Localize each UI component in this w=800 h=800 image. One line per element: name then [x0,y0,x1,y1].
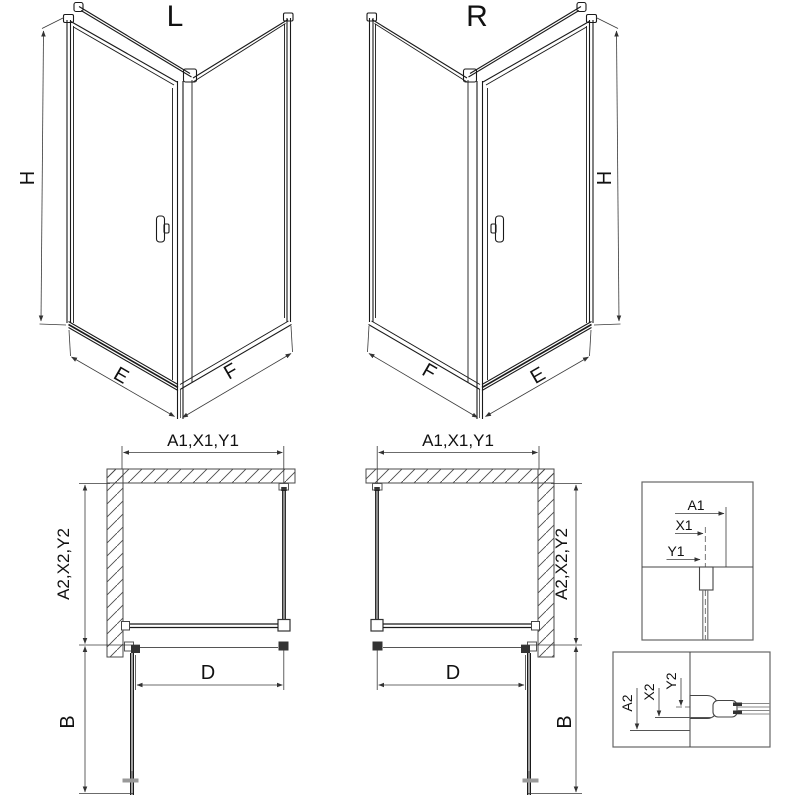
dim-label-front-width-left: E [110,363,133,389]
diagram-canvas: L H E F R H E F A1,X1,Y1 A2,X2,Y2 D B A1… [0,0,800,800]
detail-dim-x1: X1 [675,517,692,533]
dim-label-height-left: H [17,171,39,185]
dim-label-height-right: H [594,171,616,185]
dim-label-side-left-plan: A2,X2,Y2 [54,528,73,600]
dim-label-door-swing-left-plan: B [57,715,79,728]
orientation-label-right: R [466,0,488,33]
dim-label-side-right-plan: A2,X2,Y2 [552,528,571,600]
detail-dim-y2: Y2 [663,672,679,689]
dim-label-door-swing-right-plan: B [554,715,576,728]
plan-view-left: A1,X1,Y1 A2,X2,Y2 D B [54,431,295,795]
dim-label-door-opening-right-plan: D [446,662,460,684]
dim-label-side-width-left: F [220,359,242,384]
wall-top-right-plan [366,469,554,483]
dim-label-top-left-plan: A1,X1,Y1 [167,431,239,450]
detail-box-wall-profile: A1 X1 Y1 [642,482,753,640]
detail-box-bottom-profile: A2 X2 Y2 [613,652,770,747]
plan-view-right: A1,X1,Y1 A2,X2,Y2 D B [366,431,582,795]
shower-enclosure-diagram: L H E F R H E F A1,X1,Y1 A2,X2,Y2 D B A1… [0,0,800,800]
wall-profile-section [700,567,714,590]
detail-dim-y1: Y1 [667,543,684,559]
detail-dim-a1: A1 [687,497,704,513]
orientation-label-left: L [167,0,184,33]
detail-dim-a2: A2 [619,694,635,711]
dim-label-door-opening-left-plan: D [201,662,215,684]
dim-label-side-width-right: F [418,359,440,384]
iso-view-left: L H E F [17,0,293,419]
iso-view-right: R H E F [367,0,621,419]
dim-label-front-width-right: E [527,363,550,389]
wall-top-left-plan [107,469,295,483]
wall-side-left-plan [107,469,123,657]
detail-dim-x2: X2 [641,683,657,700]
dim-label-top-right-plan: A1,X1,Y1 [422,431,494,450]
